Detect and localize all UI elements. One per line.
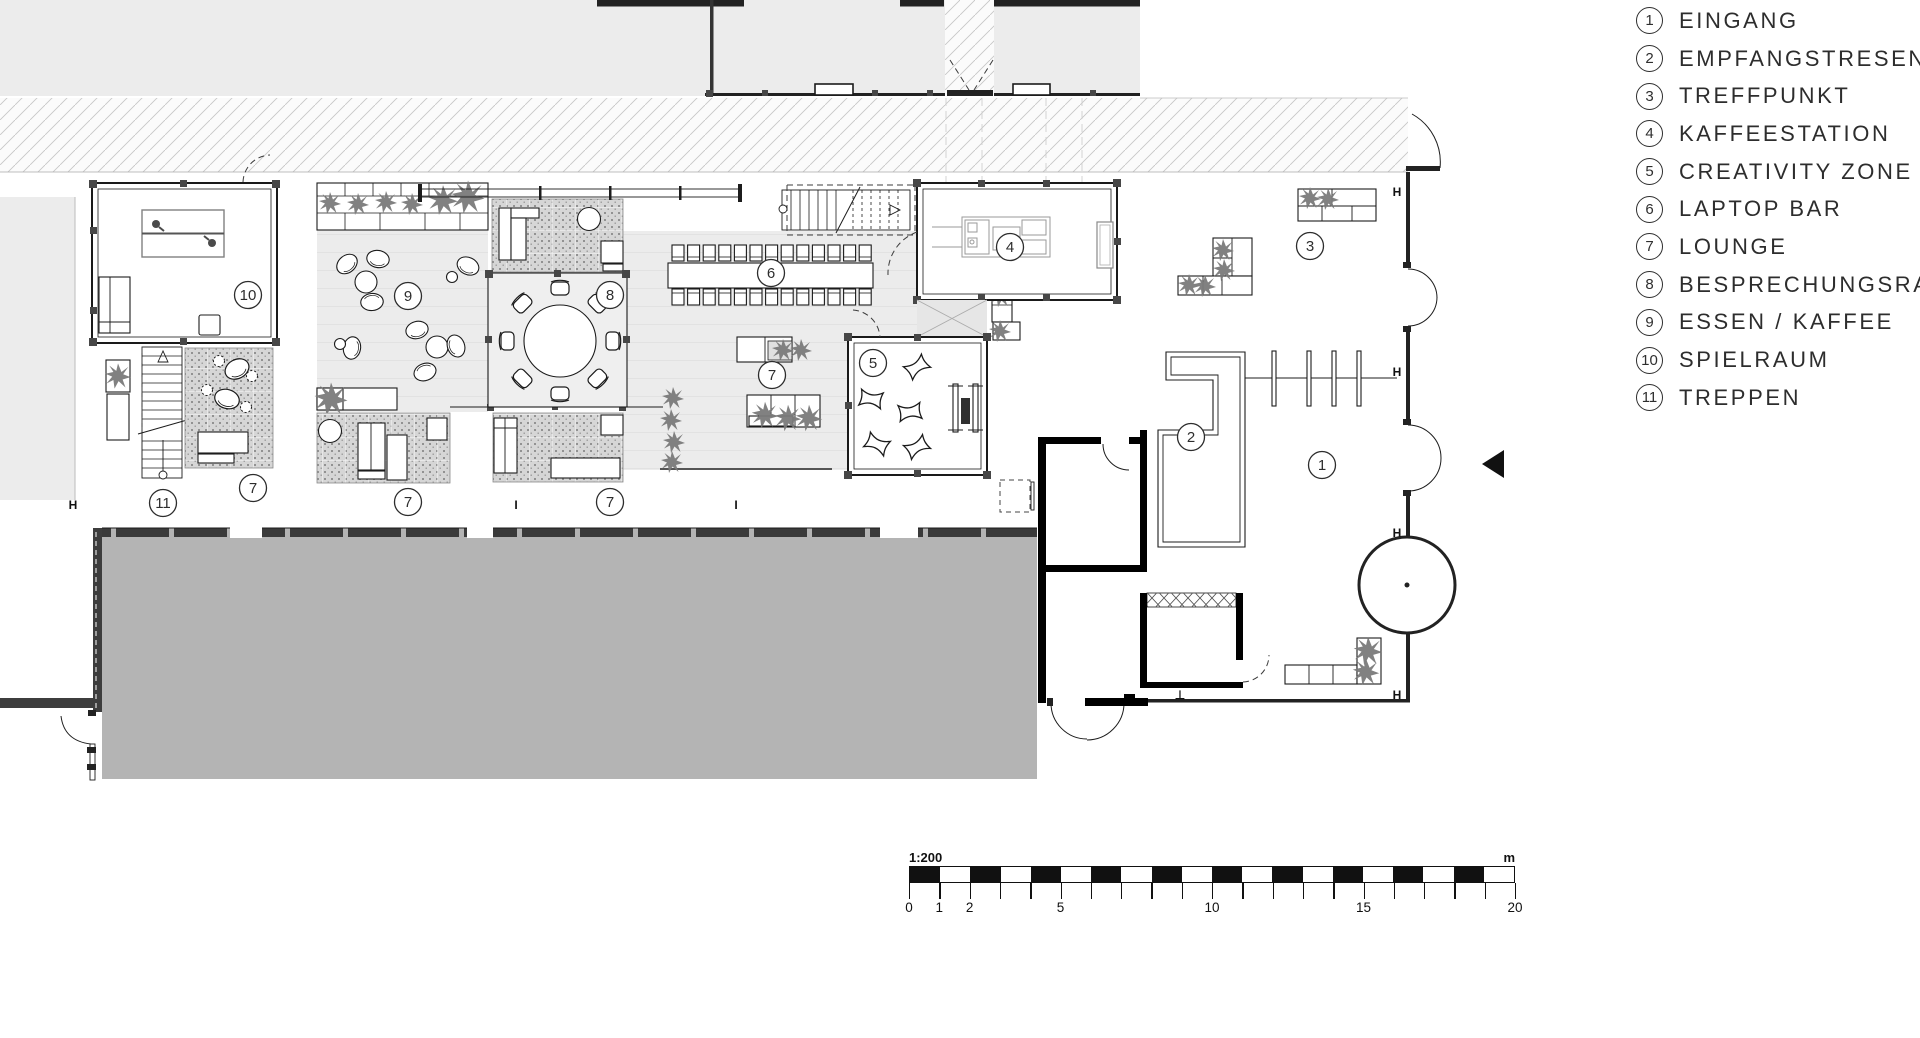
scale-bar-label: 1 bbox=[936, 900, 944, 915]
svg-text:1: 1 bbox=[1318, 457, 1326, 474]
room-spielraum bbox=[89, 155, 280, 346]
section-marker: ⊥ bbox=[1175, 688, 1185, 702]
scale-bar-labels: 0125101520 bbox=[909, 900, 1515, 916]
scale-bar-label: 2 bbox=[966, 900, 974, 915]
scale-bar-label: 5 bbox=[1057, 900, 1065, 915]
legend-item: 5 CREATIVITY ZONE bbox=[1636, 153, 1916, 191]
legend-item-label: TREFFPUNKT bbox=[1679, 83, 1850, 109]
legend-item-number: 8 bbox=[1636, 271, 1663, 298]
svg-text:2: 2 bbox=[1187, 429, 1195, 446]
legend-item: 1 EINGANG bbox=[1636, 2, 1916, 40]
legend-item-number: 4 bbox=[1636, 120, 1663, 147]
legend-item-number: 11 bbox=[1636, 384, 1663, 411]
legend-item-label: SPIELRAUM bbox=[1679, 347, 1830, 373]
adjacent-building-top bbox=[0, 0, 1140, 97]
legend-item-number: 3 bbox=[1636, 83, 1663, 110]
lounge-west bbox=[185, 348, 273, 468]
scale-unit: m bbox=[1503, 850, 1515, 865]
section-marker: H bbox=[69, 498, 78, 512]
legend-item-number: 7 bbox=[1636, 233, 1663, 260]
svg-text:6: 6 bbox=[767, 265, 775, 282]
floor-plan-page: { "legend": { "items": [ {"num":"1","lab… bbox=[0, 0, 1920, 1038]
chute bbox=[917, 300, 987, 337]
svg-text:11: 11 bbox=[155, 495, 171, 512]
legend-item-label: KAFFEESTATION bbox=[1679, 121, 1890, 147]
svg-text:7: 7 bbox=[768, 367, 776, 384]
svg-text:8: 8 bbox=[606, 287, 614, 304]
scale-ratio: 1:200 bbox=[909, 850, 942, 865]
scale-bar-segments bbox=[909, 866, 1515, 883]
section-marker: I bbox=[734, 498, 737, 512]
legend-item: 9 ESSEN / KAFFEE bbox=[1636, 304, 1916, 342]
svg-text:7: 7 bbox=[606, 494, 614, 511]
svg-text:7: 7 bbox=[404, 494, 412, 511]
legend-item: 2 EMPFANGSTRESEN bbox=[1636, 40, 1916, 78]
legend-item-label: EMPFANGSTRESEN bbox=[1679, 46, 1920, 72]
entrance-arrow-icon bbox=[1482, 450, 1504, 478]
scale-bar: 1:200 m 0125101520 bbox=[909, 850, 1515, 916]
section-marker: I bbox=[514, 498, 517, 512]
legend-item-number: 10 bbox=[1636, 347, 1663, 374]
scale-bar-label: 0 bbox=[905, 900, 913, 915]
legend-item-number: 6 bbox=[1636, 196, 1663, 223]
lounge-mid-west bbox=[317, 413, 450, 483]
legend-item: 10 SPIELRAUM bbox=[1636, 341, 1916, 379]
svg-text:4: 4 bbox=[1006, 239, 1014, 256]
stairs-treppen bbox=[105, 347, 187, 479]
legend-item: 3 TREFFPUNKT bbox=[1636, 77, 1916, 115]
section-marker: H bbox=[1393, 526, 1402, 540]
legend-item-number: 2 bbox=[1636, 45, 1663, 72]
svg-text:7: 7 bbox=[249, 480, 257, 497]
svg-text:5: 5 bbox=[869, 355, 877, 372]
legend-item: 4 KAFFEESTATION bbox=[1636, 115, 1916, 153]
legend-item: 11 TREPPEN bbox=[1636, 379, 1916, 417]
legend-item-label: TREPPEN bbox=[1679, 385, 1801, 411]
legend-item-label: CREATIVITY ZONE bbox=[1679, 159, 1913, 185]
legend-item: 6 LAPTOP BAR bbox=[1636, 190, 1916, 228]
legend-item-label: LOUNGE bbox=[1679, 234, 1788, 260]
adjacent-building-left bbox=[0, 197, 75, 500]
legend-item: 8 BESPRECHUNGSRAUM bbox=[1636, 266, 1916, 304]
legend-item-label: BESPRECHUNGSRAUM bbox=[1679, 272, 1920, 298]
scale-bar-label: 15 bbox=[1356, 900, 1371, 915]
legend-item-number: 9 bbox=[1636, 309, 1663, 336]
legend-item: 7 LOUNGE bbox=[1636, 228, 1916, 266]
scale-bar-ticks bbox=[909, 883, 1515, 900]
section-marker: H bbox=[1393, 185, 1402, 199]
svg-text:10: 10 bbox=[240, 287, 257, 304]
legend-item-number: 5 bbox=[1636, 158, 1663, 185]
hall-building bbox=[0, 526, 1037, 780]
legend-item-label: EINGANG bbox=[1679, 8, 1799, 34]
legend: 1 EINGANG 2 EMPFANGSTRESEN 3 TREFFPUNKT … bbox=[1636, 2, 1916, 417]
section-marker: H bbox=[1393, 688, 1402, 702]
section-marker: H bbox=[1393, 365, 1402, 379]
site-hatch-band bbox=[0, 98, 1408, 172]
stairs-upper bbox=[779, 185, 915, 235]
svg-text:9: 9 bbox=[404, 288, 412, 305]
scale-bar-label: 10 bbox=[1204, 900, 1219, 915]
svg-text:3: 3 bbox=[1306, 238, 1314, 255]
room-besprechung-lounge bbox=[492, 199, 623, 272]
legend-item-number: 1 bbox=[1636, 7, 1663, 34]
legend-item-label: ESSEN / KAFFEE bbox=[1679, 309, 1894, 335]
legend-item-label: LAPTOP BAR bbox=[1679, 196, 1842, 222]
scale-bar-label: 20 bbox=[1507, 900, 1522, 915]
